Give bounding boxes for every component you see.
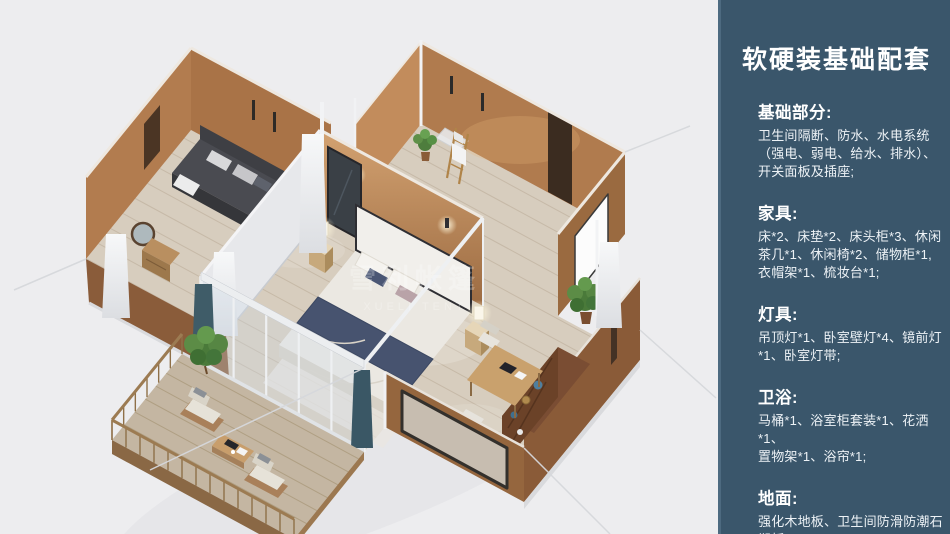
info-panel: 软硬装基础配套 基础部分:卫生间隔断、防水、水电系统 （强电、弱电、给水、排水）… [718,0,950,534]
panel-sections: 基础部分:卫生间隔断、防水、水电系统 （强电、弱电、给水、排水）、 开关面板及插… [742,99,948,534]
panel-title: 软硬装基础配套 [742,40,938,76]
panel-section-3: 卫浴:马桶*1、浴室柜套装*1、花洒*1、 置物架*1、浴帘*1; [758,384,948,466]
cube-lamp [474,306,484,320]
section-heading: 基础部分: [758,99,948,123]
watermark-cn: 雪利帐篷 [349,263,481,294]
panel-section-4: 地面:强化木地板、卫生间防滑防潮石 塑板; [758,485,948,534]
teal-curtain [351,370,373,448]
curtain-bracket [450,76,453,94]
section-body: 吊顶灯*1、卧室壁灯*4、镜前灯 *1、卧室灯带; [758,329,948,365]
wall-hook [252,100,255,120]
bowl [517,429,523,435]
section-heading: 灯具: [758,301,948,325]
woven-plate [522,396,530,404]
panel-section-2: 灯具:吊顶灯*1、卧室壁灯*4、镜前灯 *1、卧室灯带; [758,301,948,365]
wall-hook [273,112,276,132]
floorplan-render: 雪利帐篷 XUELI TENT [0,0,718,534]
slide: 雪利帐篷 XUELI TENT 软硬装基础配套 基础部分:卫生间隔断、防水、水电… [0,0,950,534]
section-body: 卫生间隔断、防水、水电系统 （强电、弱电、给水、排水）、 开关面板及插座; [758,127,948,181]
door-opening [548,112,572,205]
wall-lamp [445,218,449,228]
curtain [299,134,327,253]
section-body: 床*2、床垫*2、床头柜*3、休闲 茶几*1、休闲椅*2、储物柜*1, 衣帽架*… [758,228,948,282]
section-body: 强化木地板、卫生间防滑防潮石 塑板; [758,513,948,534]
watermark: 雪利帐篷 XUELI TENT [349,263,481,313]
panel-section-1: 家具:床*2、床垫*2、床头柜*3、休闲 茶几*1、休闲椅*2、储物柜*1, 衣… [758,200,948,282]
section-heading: 家具: [758,200,948,224]
cup [231,450,235,454]
floorplan-3d-scene: 雪利帐篷 XUELI TENT [0,0,718,534]
section-heading: 卫浴: [758,384,948,408]
section-body: 马桶*1、浴室柜套装*1、花洒*1、 置物架*1、浴帘*1; [758,412,948,466]
section-heading: 地面: [758,485,948,509]
watermark-en: XUELI TENT [363,301,466,313]
curtain [102,234,130,318]
curtain [596,242,622,328]
curtain-bracket [481,93,484,111]
panel-section-0: 基础部分:卫生间隔断、防水、水电系统 （强电、弱电、给水、排水）、 开关面板及插… [758,99,948,181]
